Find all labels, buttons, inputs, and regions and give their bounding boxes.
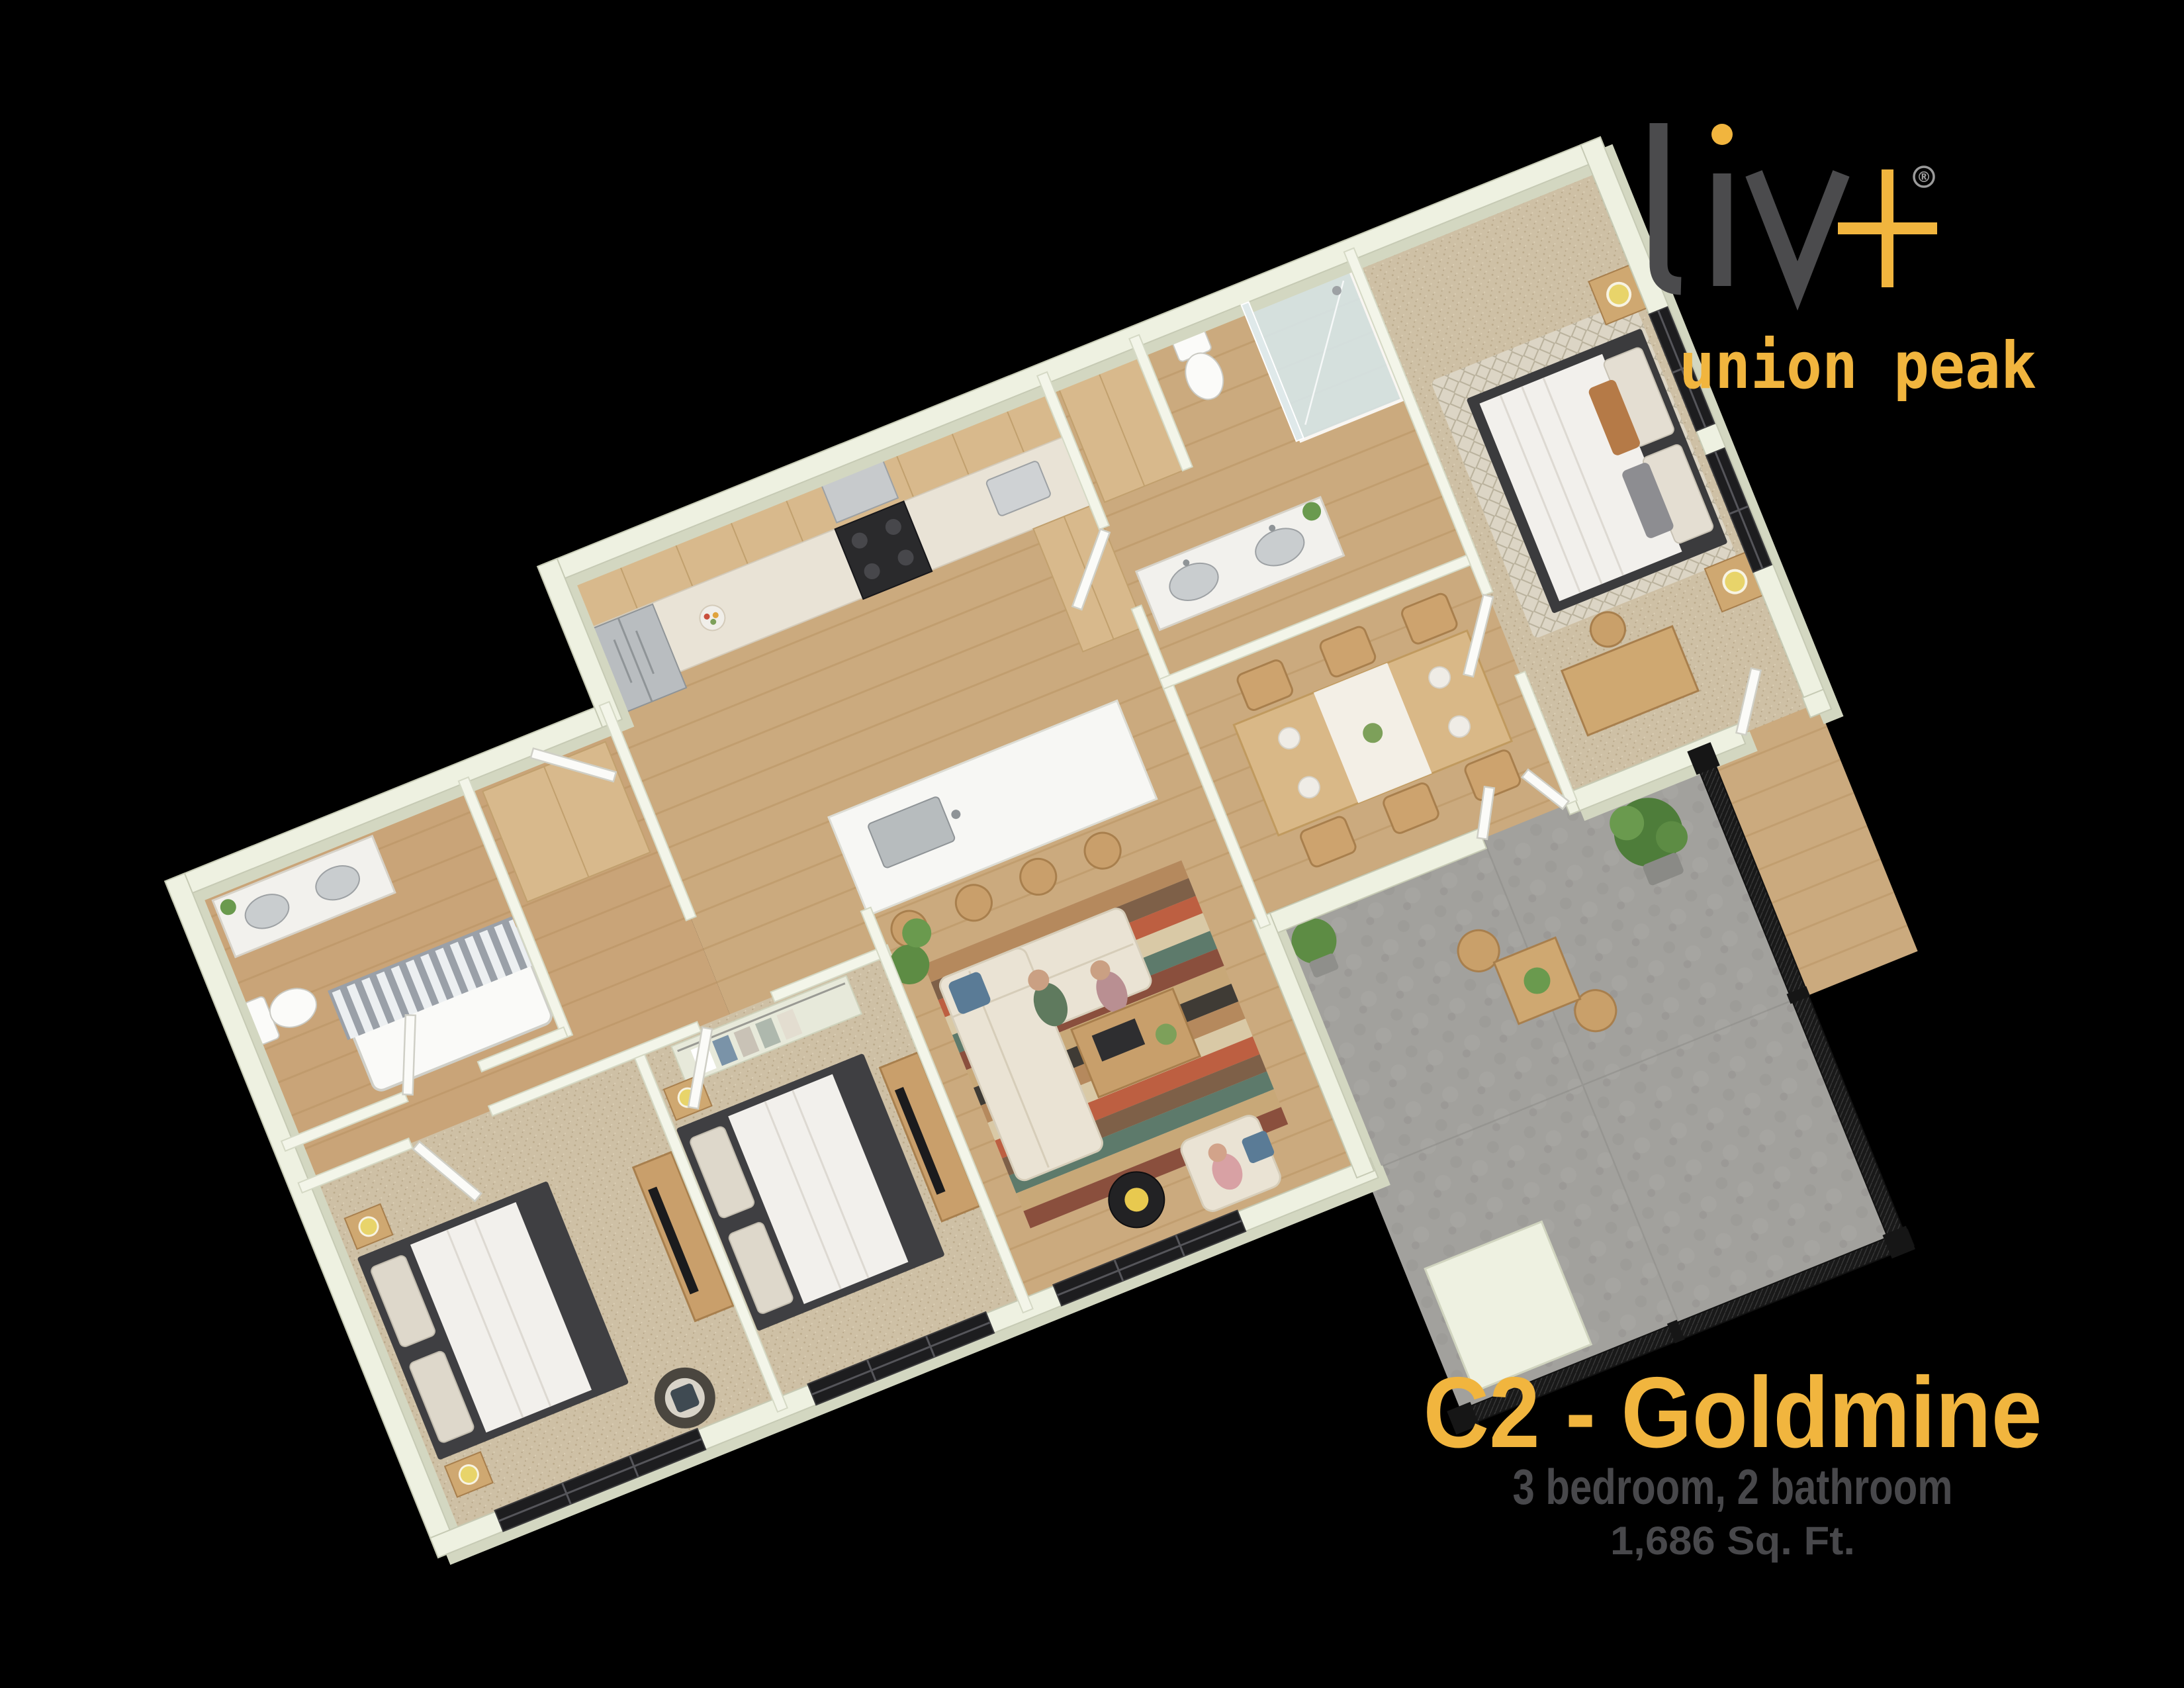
plan-title: C2 - Goldmine (1424, 1356, 2042, 1469)
letter-l (1659, 123, 1681, 286)
floorplan-marketing-image: liv + ® union peak C2 - Goldmine 3 bedro… (0, 0, 2184, 1688)
logo-tagline: union peak (1679, 328, 2036, 403)
registered-mark: ® (1917, 169, 1931, 186)
logo-wordmark-liv (1659, 123, 1841, 286)
letter-v (1754, 173, 1841, 286)
plan-specs: 3 bedroom, 2 bathroom (1513, 1459, 1953, 1515)
liv-plus-logo: liv + ® union peak (0, 0, 2036, 403)
plan-area: 1,686 Sq. Ft. (1610, 1519, 1855, 1563)
bathroom2-door (403, 1015, 416, 1094)
letter-i-gold-dot (1711, 124, 1733, 145)
plan-caption: C2 - Goldmine 3 bedroom, 2 bathroom 1,68… (1424, 1356, 2042, 1563)
